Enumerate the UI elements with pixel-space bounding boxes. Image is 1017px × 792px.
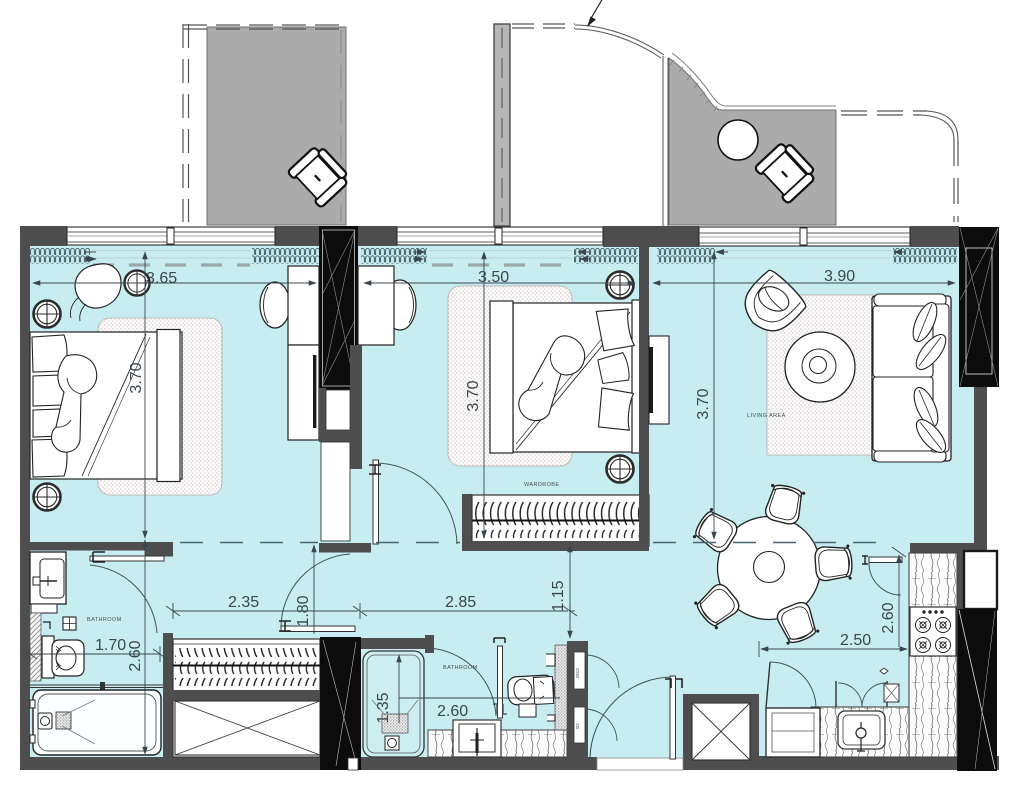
svg-text:B2: B2 — [575, 723, 580, 729]
svg-text:1.70: 1.70 — [95, 637, 126, 654]
svg-text:2.50: 2.50 — [840, 632, 871, 649]
svg-text:3.65: 3.65 — [146, 270, 177, 287]
svg-text:2.60: 2.60 — [437, 703, 468, 720]
svg-text:1.15: 1.15 — [550, 580, 567, 611]
svg-text:DNO: DNO — [575, 668, 580, 678]
svg-text:WARDROBE: WARDROBE — [524, 482, 559, 488]
svg-text:1.80: 1.80 — [295, 595, 312, 626]
svg-text:2.60: 2.60 — [880, 602, 897, 633]
svg-text:3.70: 3.70 — [695, 388, 712, 419]
svg-text:1.35: 1.35 — [375, 692, 392, 723]
svg-text:BATHROOM: BATHROOM — [87, 617, 122, 623]
svg-text:3.70: 3.70 — [128, 362, 145, 393]
svg-text:3.90: 3.90 — [824, 268, 855, 285]
svg-text:2.60: 2.60 — [127, 640, 144, 671]
svg-text:3.50: 3.50 — [478, 269, 509, 286]
svg-text:LIVING AREA: LIVING AREA — [747, 413, 786, 419]
svg-text:2.85: 2.85 — [445, 594, 476, 611]
svg-text:2.35: 2.35 — [228, 594, 259, 611]
svg-text:BATHROOM: BATHROOM — [443, 665, 478, 671]
svg-text:3.70: 3.70 — [465, 380, 482, 411]
